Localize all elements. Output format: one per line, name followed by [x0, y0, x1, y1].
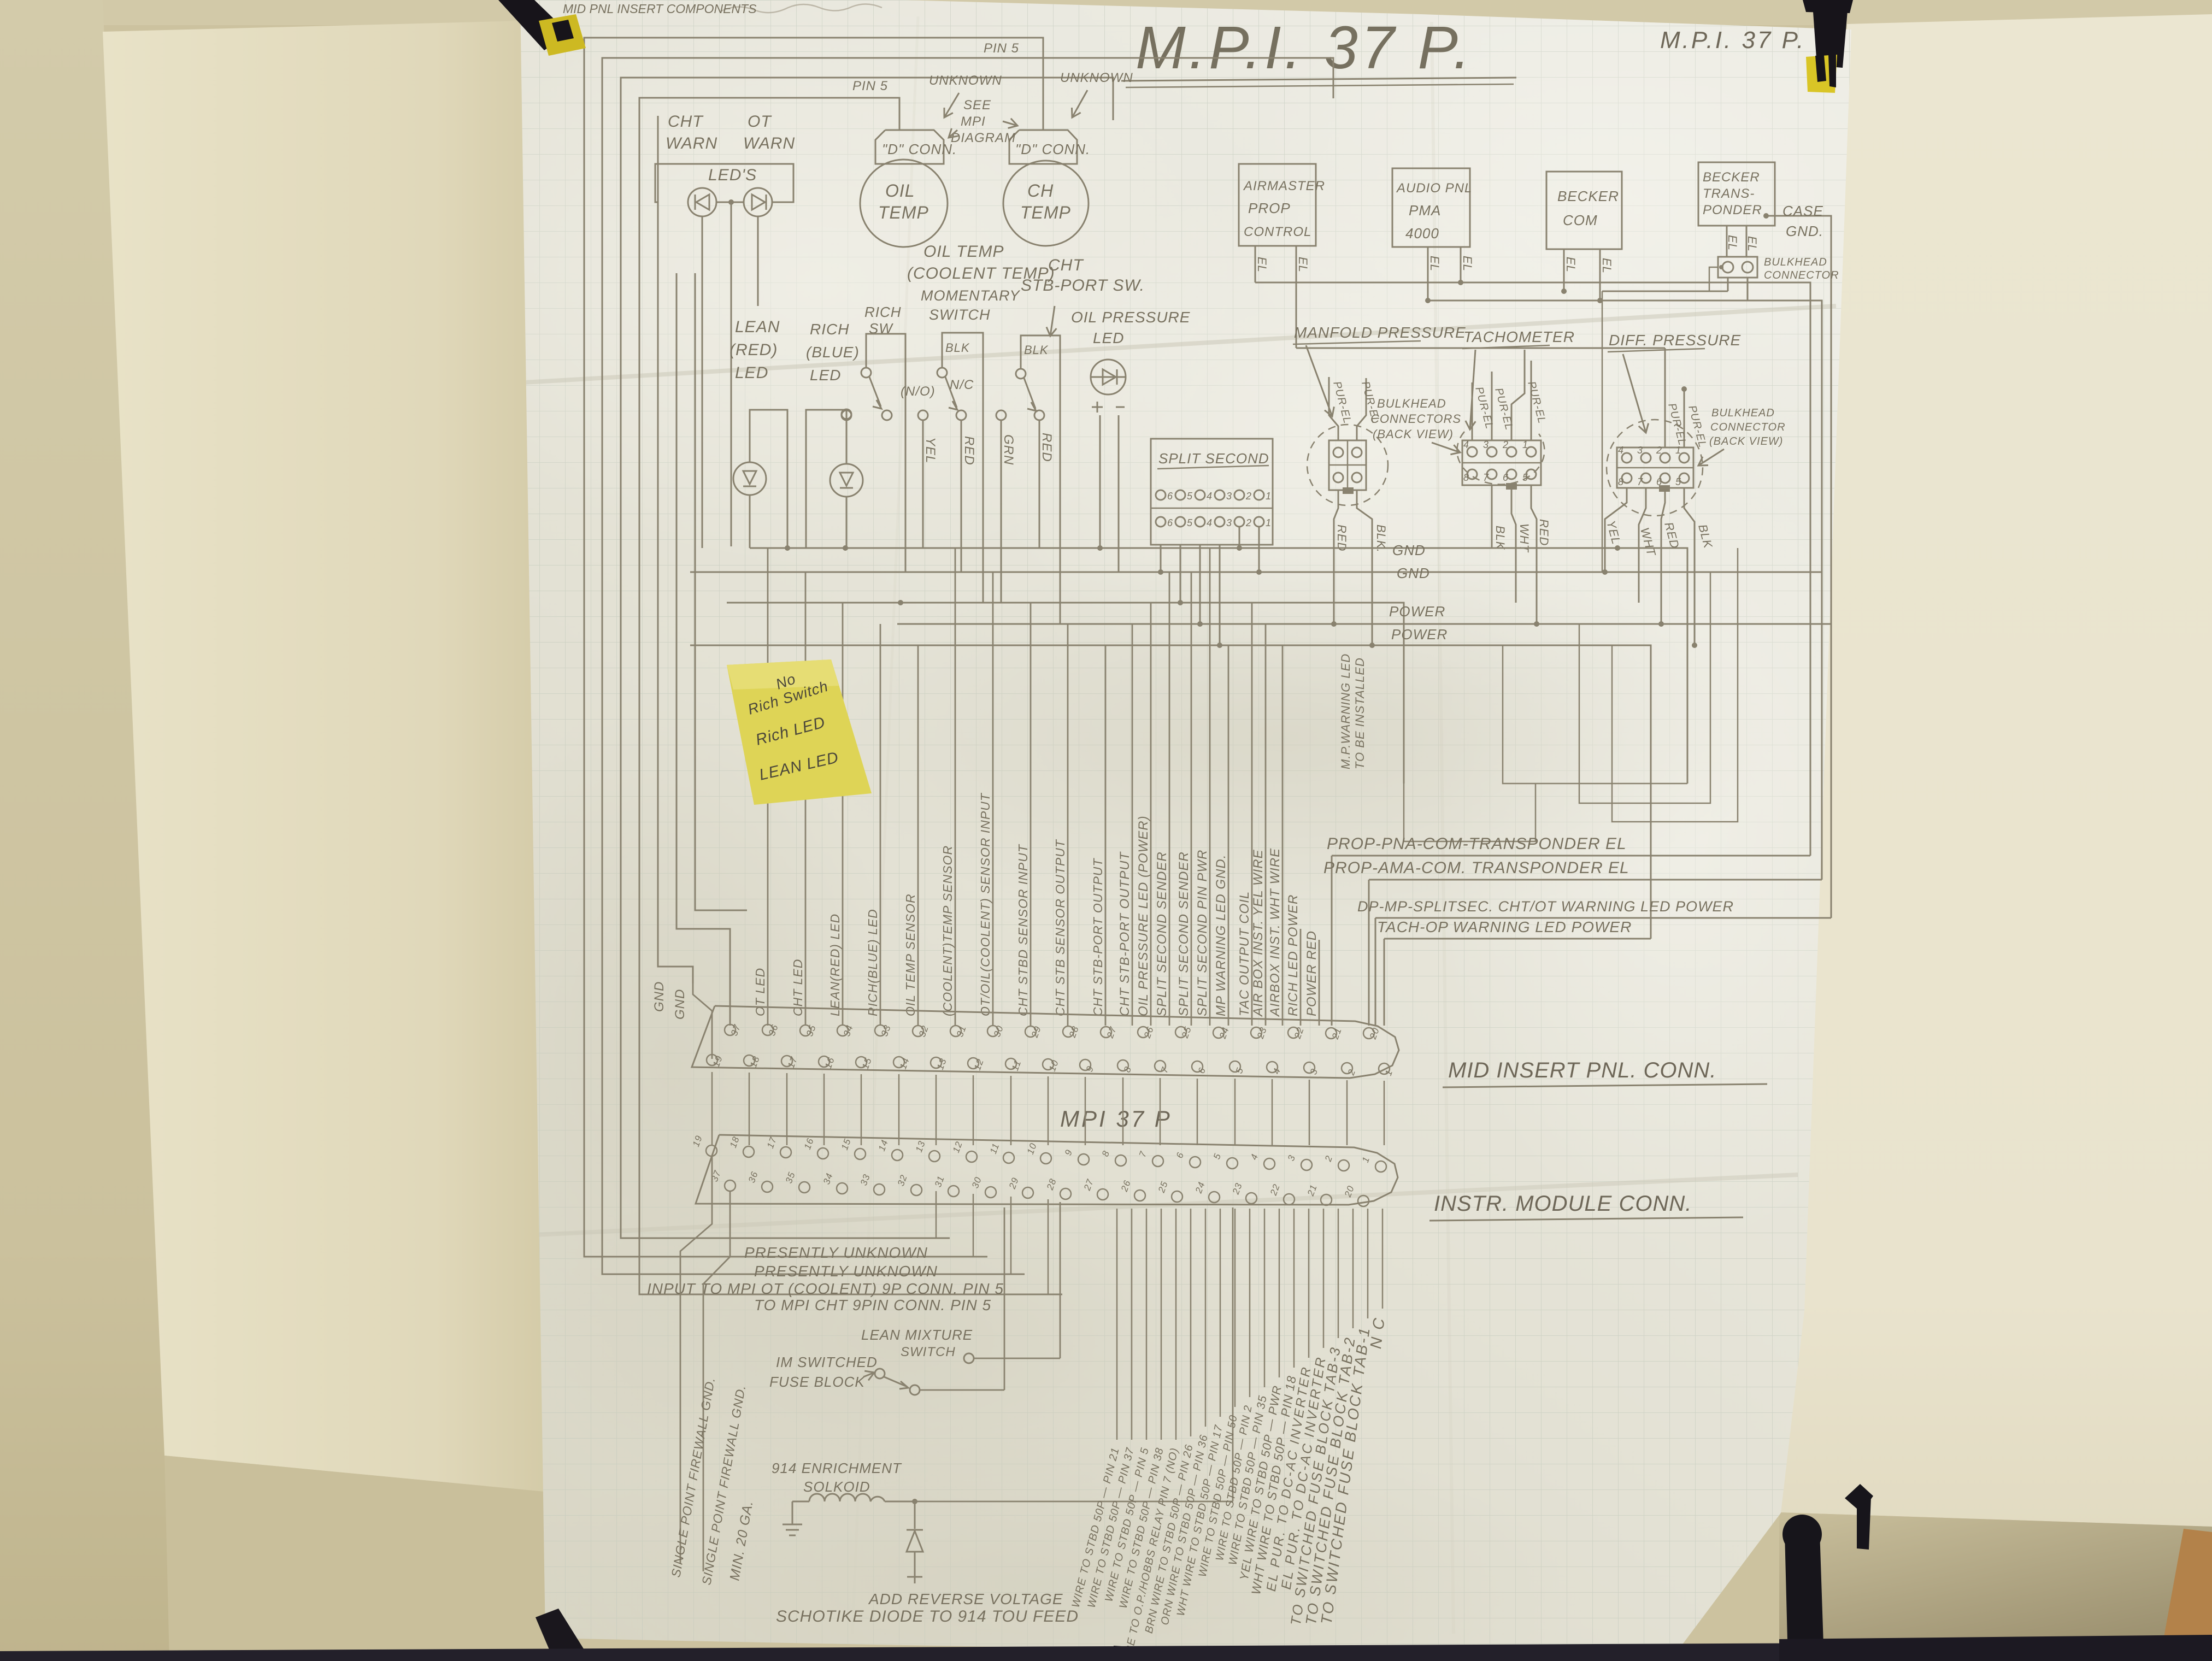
svg-text:SOLKOID: SOLKOID	[803, 1479, 870, 1495]
svg-text:DP-MP-SPLITSEC. CHT/OT WARNING: DP-MP-SPLITSEC. CHT/OT WARNING LED POWER	[1357, 898, 1734, 915]
svg-text:INSTR. MODULE CONN.: INSTR. MODULE CONN.	[1434, 1192, 1692, 1216]
svg-text:EL: EL	[1461, 256, 1474, 272]
svg-text:LED'S: LED'S	[708, 166, 757, 184]
svg-text:4: 4	[1618, 445, 1624, 456]
svg-text:MANFOLD PRESSURE: MANFOLD PRESSURE	[1294, 324, 1466, 341]
svg-text:3: 3	[1226, 491, 1232, 502]
svg-text:POWER: POWER	[1389, 603, 1445, 620]
svg-text:OIL TEMP SENSOR: OIL TEMP SENSOR	[903, 893, 917, 1016]
svg-text:RICH: RICH	[864, 304, 902, 320]
svg-text:6: 6	[1503, 472, 1509, 483]
svg-text:COM: COM	[1563, 212, 1598, 228]
svg-text:CHT STB-PORT OUTPUT: CHT STB-PORT OUTPUT	[1117, 851, 1132, 1016]
svg-text:OT: OT	[748, 113, 772, 131]
svg-text:4: 4	[1463, 439, 1469, 450]
svg-text:CONNECTOR: CONNECTOR	[1764, 269, 1839, 281]
svg-text:RED: RED	[1039, 433, 1054, 462]
svg-text:EL: EL	[1600, 258, 1614, 274]
svg-text:3: 3	[1483, 439, 1489, 450]
svg-text:5: 5	[1187, 517, 1193, 528]
svg-text:5: 5	[1675, 476, 1681, 487]
svg-text:LED: LED	[735, 364, 768, 382]
svg-text:DIFF. PRESSURE: DIFF. PRESSURE	[1609, 332, 1741, 349]
svg-text:RICH: RICH	[810, 321, 849, 338]
svg-text:ADD REVERSE VOLTAGE: ADD REVERSE VOLTAGE	[868, 1591, 1063, 1607]
svg-text:INPUT TO MPI OT (COOLENT) 9P: INPUT TO MPI OT (COOLENT) 9P CONN. PIN 5	[647, 1280, 1004, 1297]
svg-text:2: 2	[1245, 491, 1252, 502]
svg-text:TRANS-: TRANS-	[1703, 186, 1755, 201]
svg-text:SPLIT SECOND: SPLIT SECOND	[1158, 450, 1269, 467]
svg-text:IM SWITCHED: IM SWITCHED	[776, 1354, 878, 1370]
svg-text:(BACK VIEW): (BACK VIEW)	[1709, 435, 1783, 447]
svg-text:SPLIT SECOND SENDER: SPLIT SECOND SENDER	[1176, 851, 1191, 1016]
svg-text:PRESENTLY UNKNOWN: PRESENTLY UNKNOWN	[744, 1244, 928, 1261]
svg-text:4000: 4000	[1405, 225, 1439, 242]
svg-text:1: 1	[1522, 439, 1528, 450]
svg-text:N/C: N/C	[950, 378, 974, 392]
svg-text:OT LED: OT LED	[753, 968, 767, 1016]
svg-text:CHT STBD SENSOR INPUT: CHT STBD SENSOR INPUT	[1016, 844, 1030, 1016]
svg-text:BECKER: BECKER	[1703, 170, 1760, 185]
svg-text:FUSE BLOCK: FUSE BLOCK	[769, 1374, 865, 1390]
svg-text:GND.: GND.	[1786, 223, 1823, 239]
svg-text:BLK: BLK	[945, 341, 970, 355]
svg-text:3: 3	[1226, 517, 1232, 528]
svg-text:TEMP: TEMP	[1020, 203, 1071, 222]
svg-text:PIN 5: PIN 5	[984, 41, 1019, 56]
svg-text:EL: EL	[1726, 235, 1739, 251]
svg-text:BULKHEAD: BULKHEAD	[1764, 256, 1827, 268]
svg-text:SPLIT SECOND SENDER: SPLIT SECOND SENDER	[1155, 851, 1169, 1016]
svg-text:OIL PRESSURE: OIL PRESSURE	[1071, 309, 1190, 326]
svg-text:RICH LED POWER: RICH LED POWER	[1286, 894, 1301, 1016]
svg-text:CONNECTORS: CONNECTORS	[1370, 412, 1461, 426]
svg-text:(RED): (RED)	[730, 341, 778, 359]
svg-text:8: 8	[1618, 476, 1624, 487]
svg-text:SCHOTIKE DIODE TO 914 TOU FEED: SCHOTIKE DIODE TO 914 TOU FEED	[776, 1607, 1079, 1625]
svg-text:TACH-OP WARNING LED POWER: TACH-OP WARNING LED POWER	[1377, 918, 1632, 935]
svg-text:EL: EL	[1428, 256, 1442, 272]
svg-text:"D" CONN.: "D" CONN.	[1015, 141, 1090, 157]
svg-text:BLK: BLK	[1493, 526, 1507, 550]
svg-text:EL: EL	[1564, 257, 1578, 273]
svg-text:SEE: SEE	[963, 98, 991, 113]
svg-text:AIRBOX INST. WHT WIRE: AIRBOX INST. WHT WIRE	[1268, 848, 1283, 1017]
svg-text:BECKER: BECKER	[1557, 188, 1619, 204]
svg-text:PROP: PROP	[1248, 200, 1291, 216]
svg-text:LEAN: LEAN	[735, 318, 780, 336]
svg-text:UNKNOWN: UNKNOWN	[1060, 70, 1133, 85]
svg-text:GND: GND	[652, 981, 667, 1012]
svg-text:3: 3	[1637, 445, 1643, 456]
svg-text:EL: EL	[1255, 257, 1269, 273]
svg-text:PMA: PMA	[1409, 202, 1441, 219]
svg-text:4: 4	[1207, 517, 1213, 528]
svg-text:2: 2	[1245, 517, 1252, 528]
svg-text:MPI 37 P: MPI 37 P	[1060, 1106, 1172, 1132]
svg-text:M.P.I. 37 P.: M.P.I. 37 P.	[1136, 14, 1473, 81]
svg-text:6: 6	[1167, 491, 1173, 502]
svg-text:CASE: CASE	[1782, 203, 1823, 219]
svg-text:MPI: MPI	[961, 114, 986, 129]
svg-text:RED: RED	[1537, 519, 1551, 546]
svg-text:M.P.I. 37 P.: M.P.I. 37 P.	[1660, 27, 1806, 54]
svg-text:LEAN(RED) LED: LEAN(RED) LED	[828, 914, 842, 1016]
svg-text:GRN: GRN	[1001, 434, 1016, 465]
svg-text:PROP-PNA-COM-TRANSPONDER EL: PROP-PNA-COM-TRANSPONDER EL	[1327, 835, 1627, 853]
svg-text:TAC OUTPUT COIL: TAC OUTPUT COIL	[1237, 891, 1252, 1016]
svg-text:(N/O): (N/O)	[901, 384, 936, 399]
svg-text:DIAGRAM: DIAGRAM	[951, 131, 1016, 145]
svg-text:MP WARNING LED GND.: MP WARNING LED GND.	[1214, 855, 1228, 1016]
svg-text:BLK: BLK	[1024, 343, 1049, 357]
svg-text:(COOLENT)TEMP SENSOR: (COOLENT)TEMP SENSOR	[940, 845, 955, 1016]
svg-text:PROP-AMA-COM. TRANSPONDER EL: PROP-AMA-COM. TRANSPONDER EL	[1323, 859, 1629, 877]
svg-text:TO BE INSTALLED: TO BE INSTALLED	[1353, 657, 1367, 769]
svg-text:CONTROL: CONTROL	[1244, 225, 1311, 239]
svg-text:POWER RED: POWER RED	[1304, 930, 1319, 1016]
svg-text:2: 2	[1656, 445, 1662, 456]
svg-text:LED: LED	[1093, 329, 1124, 346]
svg-text:LEAN MIXTURE: LEAN MIXTURE	[861, 1327, 973, 1343]
svg-text:WARN: WARN	[666, 134, 717, 152]
svg-text:5: 5	[1187, 491, 1193, 502]
svg-text:2: 2	[1502, 439, 1509, 450]
svg-text:RICH(BLUE) LED: RICH(BLUE) LED	[866, 909, 880, 1016]
svg-text:OIL: OIL	[885, 181, 915, 201]
svg-text:CHT: CHT	[1048, 256, 1084, 274]
svg-text:MOMENTARY: MOMENTARY	[921, 287, 1020, 304]
svg-text:GND: GND	[673, 989, 687, 1020]
svg-text:MID INSERT PNL. CONN.: MID INSERT PNL. CONN.	[1448, 1058, 1716, 1082]
svg-text:LED: LED	[810, 367, 841, 384]
svg-text:BULKHEAD: BULKHEAD	[1377, 397, 1446, 410]
svg-text:914 ENRICHMENT: 914 ENRICHMENT	[772, 1460, 902, 1476]
svg-text:OT/OIL(COOLENT) SENSOR INPUT: OT/OIL(COOLENT) SENSOR INPUT	[978, 792, 992, 1016]
svg-text:SWITCH: SWITCH	[929, 307, 990, 323]
svg-text:EL: EL	[1296, 257, 1310, 273]
svg-text:4: 4	[1207, 491, 1213, 502]
svg-text:CHT STB-PORT OUTPUT: CHT STB-PORT OUTPUT	[1091, 858, 1105, 1016]
svg-text:SWITCH: SWITCH	[901, 1345, 956, 1359]
svg-text:CHT STB SENSOR OUTPUT: CHT STB SENSOR OUTPUT	[1053, 839, 1067, 1016]
svg-text:6: 6	[1167, 517, 1173, 528]
svg-text:EL: EL	[1745, 236, 1759, 252]
svg-text:CHT: CHT	[668, 113, 704, 131]
svg-text:STB-PORT SW.: STB-PORT SW.	[1021, 276, 1145, 294]
svg-text:BULKHEAD: BULKHEAD	[1711, 407, 1775, 419]
svg-text:"D" CONN.: "D" CONN.	[882, 141, 957, 157]
svg-text:AIR BOX INST. YEL WIRE: AIR BOX INST. YEL WIRE	[1251, 849, 1266, 1017]
svg-text:TEMP: TEMP	[878, 203, 929, 222]
svg-text:CONNECTOR: CONNECTOR	[1710, 421, 1786, 433]
svg-text:7: 7	[1483, 472, 1489, 483]
svg-text:UNKNOWN: UNKNOWN	[929, 73, 1002, 88]
svg-text:AUDIO PNL: AUDIO PNL	[1396, 181, 1472, 196]
svg-text:1: 1	[1266, 517, 1272, 528]
svg-text:PONDER: PONDER	[1703, 203, 1762, 217]
svg-text:5: 5	[1522, 472, 1528, 483]
svg-text:(BACK VIEW): (BACK VIEW)	[1373, 427, 1454, 441]
svg-text:WARN: WARN	[743, 134, 795, 152]
svg-text:OIL PRESSURE LED (POWER): OIL PRESSURE LED (POWER)	[1136, 815, 1151, 1016]
svg-text:SPLIT SECOND PIN PWR: SPLIT SECOND PIN PWR	[1195, 850, 1210, 1016]
svg-text:YEL: YEL	[923, 437, 938, 463]
svg-text:TO MPI CHT 9PIN CONN. PIN 5: TO MPI CHT 9PIN CONN. PIN 5	[754, 1297, 991, 1314]
svg-text:8: 8	[1463, 472, 1469, 483]
svg-text:RED: RED	[962, 436, 976, 466]
svg-text:MID PNL INSERT COMPONENTS: MID PNL INSERT COMPONENTS	[563, 2, 757, 16]
svg-text:OIL TEMP: OIL TEMP	[923, 243, 1004, 261]
svg-text:7: 7	[1637, 476, 1643, 487]
svg-text:M.P.WARNING LED: M.P.WARNING LED	[1339, 653, 1352, 769]
svg-text:PIN 5: PIN 5	[852, 79, 888, 93]
svg-text:GND: GND	[1392, 542, 1426, 558]
svg-text:AIRMASTER: AIRMASTER	[1243, 179, 1325, 193]
svg-text:TACHOMETER: TACHOMETER	[1463, 328, 1575, 345]
svg-text:POWER: POWER	[1391, 626, 1448, 643]
svg-text:(BLUE): (BLUE)	[806, 344, 860, 361]
svg-text:PRESENTLY UNKNOWN: PRESENTLY UNKNOWN	[754, 1263, 938, 1280]
svg-text:GND: GND	[1397, 565, 1430, 581]
svg-text:1: 1	[1266, 491, 1272, 502]
svg-text:CH: CH	[1027, 181, 1054, 201]
